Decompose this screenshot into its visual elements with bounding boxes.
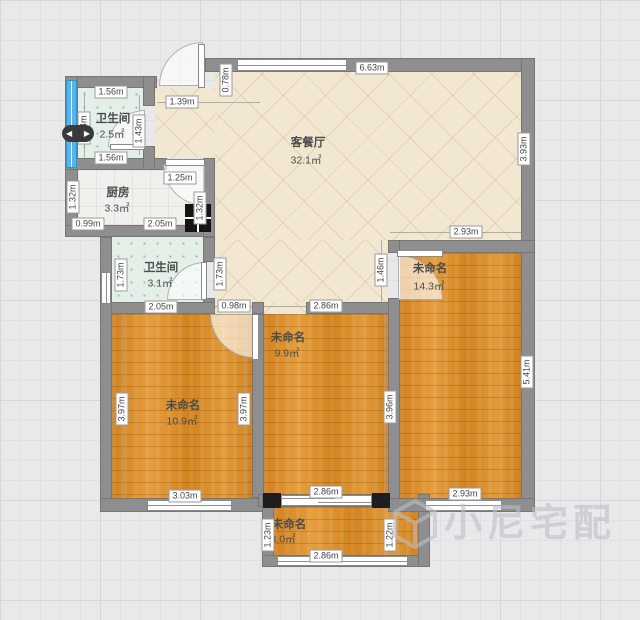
dim-label: 3.93m [518, 132, 531, 165]
dim-label: 1.46m [375, 253, 388, 286]
dim-label: 1.56m [94, 152, 127, 165]
floor-living-dining[interactable] [215, 72, 521, 240]
window-top[interactable] [237, 59, 347, 71]
room-area-bedroom-left: 10.9㎡ [167, 414, 198, 429]
kitchen-door-leaf[interactable] [165, 159, 205, 166]
dim-label: 2.86m [309, 486, 342, 499]
dim-label: 2.05m [144, 301, 177, 314]
wall-band-mid-left[interactable] [252, 302, 264, 314]
room-label-balcony: 未命名 [272, 516, 307, 532]
room-area-bedroom-right: 14.3㎡ [414, 279, 445, 294]
dim-label: 0.98m [217, 300, 250, 313]
dim-label: 1.23m [262, 518, 275, 551]
room-label-bedroom-right: 未命名 [413, 260, 448, 276]
dim-label: 2.93m [449, 226, 482, 239]
room-area-bath2: 3.1㎡ [147, 276, 172, 291]
dim-label: 3.97m [238, 392, 251, 425]
room-area-living: 32.1㎡ [291, 153, 322, 168]
pillar-balcony-left [263, 493, 281, 508]
room-area-bath1: 2.5㎡ [99, 127, 124, 142]
dim-label: 2.05m [143, 218, 176, 231]
watermark: 小尼宅配 [392, 496, 616, 552]
dim-label: 3.97m [116, 392, 129, 425]
room-area-bedroom-mid: 9.9㎡ [274, 346, 299, 361]
right-bedroom-door-leaf[interactable] [397, 250, 443, 257]
wall-outer-right[interactable] [521, 58, 535, 512]
dim-label: 2.86m [309, 550, 342, 563]
room-label-living: 客餐厅 [291, 134, 326, 150]
dim-label: 3.03m [168, 490, 201, 503]
floor-living-hallway[interactable] [215, 240, 388, 302]
dim-label: 5.41m [521, 355, 534, 388]
dim-label: 0.78m [220, 63, 233, 96]
left-bedroom-door-leaf[interactable] [252, 314, 259, 360]
wall-bath1-right-upper[interactable] [143, 76, 155, 106]
window-bath2-left[interactable] [101, 272, 111, 304]
entry-door-arc[interactable] [159, 42, 203, 86]
dim-label: 1.32m [194, 191, 207, 224]
dim-label: 3.96m [384, 390, 397, 423]
room-label-bedroom-mid: 未命名 [271, 329, 306, 345]
wall-left-room-left[interactable] [100, 302, 112, 512]
brand-cube-icon [392, 498, 438, 550]
room-label-bedroom-left: 未命名 [166, 397, 201, 413]
dim-label: 1.43m [133, 114, 146, 147]
entry-door-leaf[interactable] [198, 44, 205, 88]
dim-label: 6.63m [355, 62, 388, 75]
floor-midroom-entrance-gap [264, 302, 306, 314]
room-label-bath2: 卫生间 [144, 259, 179, 275]
floor-plan-canvas[interactable]: 6.63m 0.78m 1.39m 3.93m 2.93m 1.56m 1.56… [0, 0, 640, 620]
pan-right-icon[interactable]: ▶ [84, 125, 90, 142]
bath2-door-leaf[interactable] [201, 262, 207, 300]
dim-label: 1.25m [163, 172, 196, 185]
dim-label: 1.56m [94, 86, 127, 99]
pillar-balcony-right [372, 493, 390, 508]
room-area-kitchen: 3.3㎡ [104, 201, 129, 216]
dim-label: 1.32m [67, 180, 80, 213]
pan-left-icon[interactable]: ◀ [66, 125, 72, 142]
dim-label: 1.39m [165, 96, 198, 109]
dim-label: 1.73m [115, 258, 128, 291]
room-label-kitchen: 厨房 [107, 184, 130, 200]
pan-control[interactable]: ◀ ▶ [62, 125, 94, 142]
room-label-bath1: 卫生间 [96, 110, 131, 126]
dim-label: 2.86m [309, 300, 342, 313]
dim-label: 1.73m [214, 257, 227, 290]
window-bath1-left-selected[interactable] [66, 80, 77, 168]
watermark-text: 小尼宅配 [444, 496, 616, 552]
dim-label: 0.99m [71, 218, 104, 231]
